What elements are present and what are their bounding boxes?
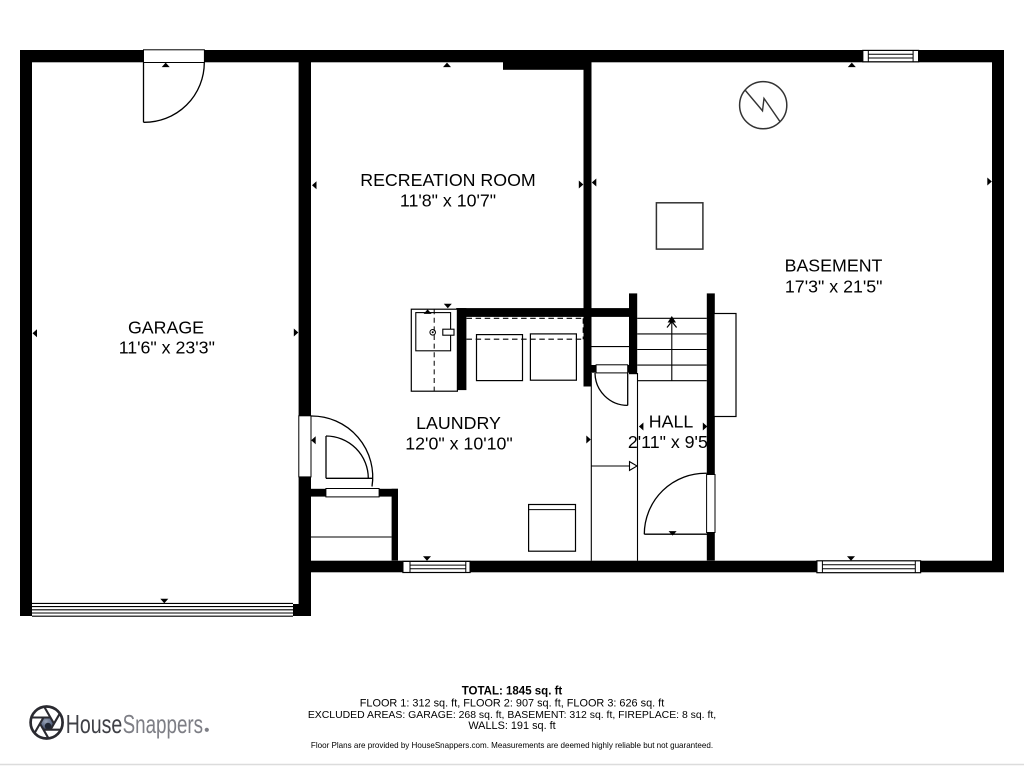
svg-text:Snappers: Snappers bbox=[123, 709, 204, 739]
svg-text:WALLS: 191 sq. ft: WALLS: 191 sq. ft bbox=[468, 720, 555, 732]
svg-text:FLOOR 1: 312 sq. ft, FLOOR 2:: FLOOR 1: 312 sq. ft, FLOOR 2: 907 sq. ft… bbox=[360, 698, 664, 710]
svg-text:House: House bbox=[66, 709, 123, 739]
svg-text:RECREATION ROOM: RECREATION ROOM bbox=[360, 170, 536, 190]
svg-text:GARAGE: GARAGE bbox=[128, 317, 204, 337]
svg-text:11'8" x 10'7": 11'8" x 10'7" bbox=[400, 190, 496, 210]
svg-text:HALL: HALL bbox=[649, 412, 694, 432]
svg-text:BASEMENT: BASEMENT bbox=[785, 256, 883, 276]
svg-text:11'6" x 23'3": 11'6" x 23'3" bbox=[119, 338, 215, 358]
svg-text:2'11" x 9'5": 2'11" x 9'5" bbox=[628, 432, 714, 452]
svg-text:LAUNDRY: LAUNDRY bbox=[416, 413, 501, 433]
svg-text:Floor Plans are provided by Ho: Floor Plans are provided by HouseSnapper… bbox=[311, 741, 713, 750]
svg-text:12'0" x 10'10": 12'0" x 10'10" bbox=[405, 433, 512, 453]
svg-text:17'3" x 21'5": 17'3" x 21'5" bbox=[785, 276, 883, 296]
svg-text:TOTAL: 1845 sq. ft: TOTAL: 1845 sq. ft bbox=[462, 686, 563, 698]
